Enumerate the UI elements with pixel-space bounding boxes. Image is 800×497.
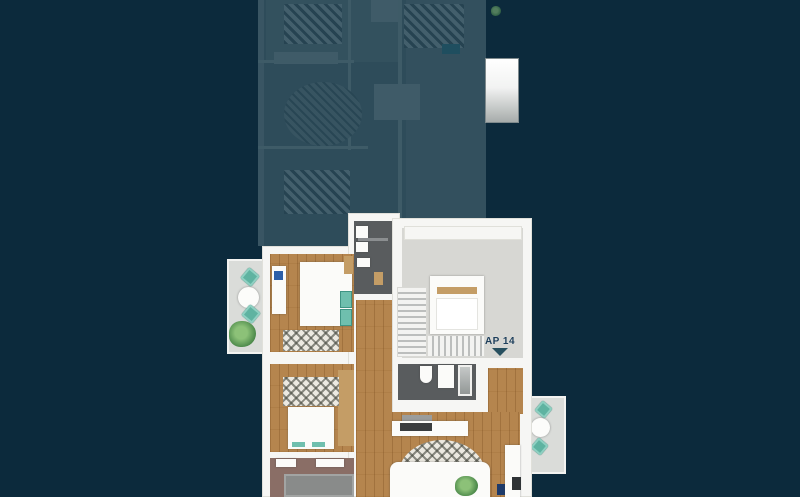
shower xyxy=(458,365,472,396)
active-apartment-ap14[interactable]: AP 14 xyxy=(0,0,800,497)
wall-top-band xyxy=(404,226,522,240)
tv xyxy=(512,477,521,490)
pillow xyxy=(340,291,352,308)
balcony-chair xyxy=(240,267,260,287)
balcony-right xyxy=(528,396,566,474)
unit-label: AP 14 xyxy=(485,337,515,347)
vanity xyxy=(316,459,344,467)
bathtub xyxy=(284,474,354,497)
plant-icon xyxy=(229,321,256,347)
sink xyxy=(438,365,454,388)
staircase xyxy=(398,288,426,356)
headboard xyxy=(437,287,477,294)
toilet xyxy=(420,366,432,383)
balcony-table xyxy=(531,418,550,437)
triangle-down-icon xyxy=(492,348,508,356)
balcony-chair xyxy=(530,437,548,455)
balcony-chair xyxy=(534,400,552,418)
tv xyxy=(274,271,283,280)
stool xyxy=(374,272,383,285)
area-rug xyxy=(283,330,339,351)
area-rug xyxy=(283,377,339,406)
hallway-floor xyxy=(356,300,392,415)
pillow xyxy=(340,309,352,326)
nightstand xyxy=(344,256,353,274)
living-floor xyxy=(488,368,523,414)
sink xyxy=(357,258,370,267)
sink xyxy=(276,459,296,467)
duvet xyxy=(436,298,478,330)
tv xyxy=(400,423,432,431)
pillow xyxy=(292,442,305,447)
wardrobe xyxy=(338,370,354,446)
floorplan-viewer: AP 14 xyxy=(0,0,800,497)
pillow xyxy=(312,442,325,447)
shelf xyxy=(358,238,388,241)
unit-marker-ap14[interactable]: AP 14 xyxy=(483,337,517,356)
toilet xyxy=(356,242,368,252)
washer xyxy=(356,226,368,238)
staircase xyxy=(428,336,484,356)
